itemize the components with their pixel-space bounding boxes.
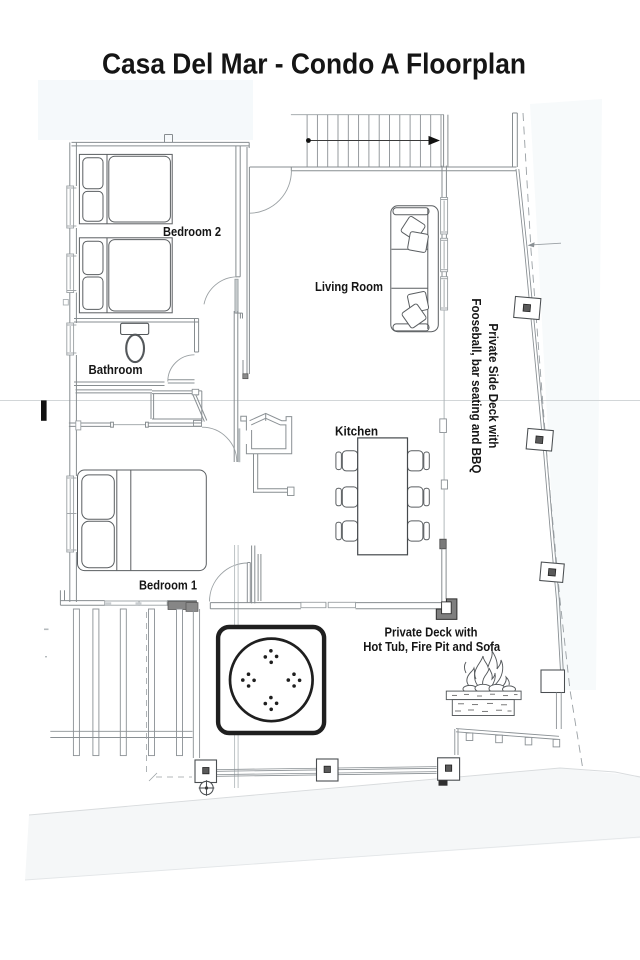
svg-text:Bathroom: Bathroom [89, 362, 143, 377]
svg-text:Bedroom 2: Bedroom 2 [163, 224, 221, 239]
svg-text:Living Room: Living Room [315, 279, 383, 294]
svg-text:Hot Tub, Fire Pit and Sofa: Hot Tub, Fire Pit and Sofa [363, 639, 501, 654]
svg-text:Casa Del Mar - Condo A Floorpl: Casa Del Mar - Condo A Floorplan [102, 49, 526, 81]
svg-text:Private Deck with: Private Deck with [385, 625, 478, 640]
svg-text:Fooseball, bar seating and BBQ: Fooseball, bar seating and BBQ [469, 298, 484, 473]
svg-text:Private Side Deck with: Private Side Deck with [486, 323, 501, 448]
svg-text:Kitchen: Kitchen [335, 423, 378, 438]
svg-text:Bedroom 1: Bedroom 1 [139, 578, 197, 593]
